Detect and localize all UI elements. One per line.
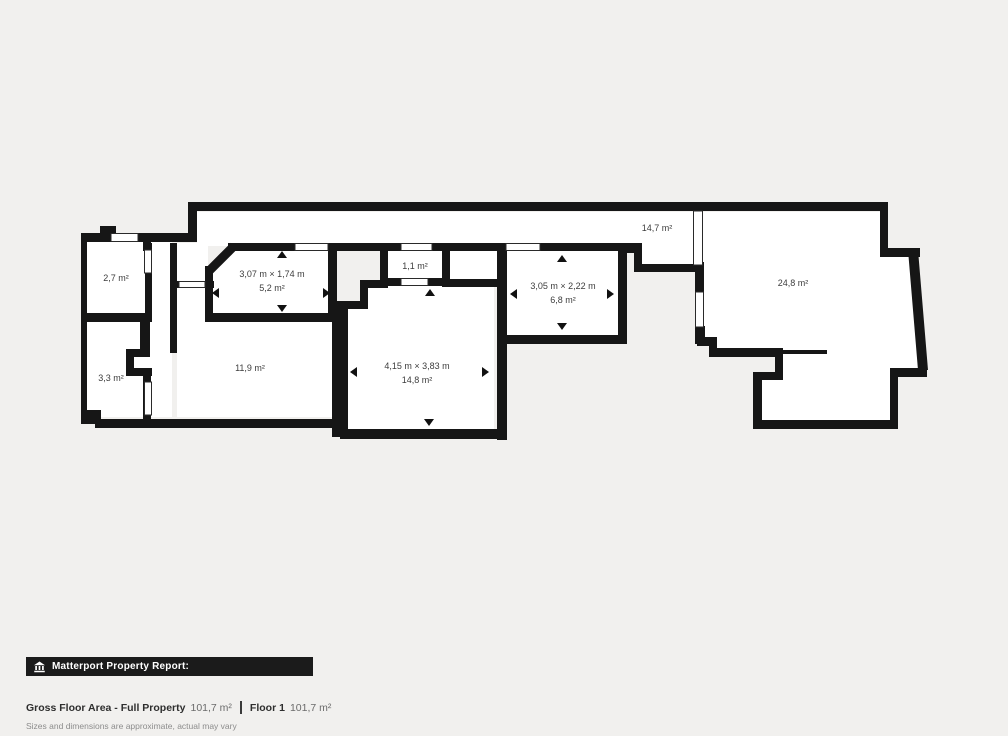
- report-title: Matterport Property Report:: [52, 661, 189, 672]
- floor-1-label: Floor 1: [250, 702, 285, 714]
- summary-divider: [240, 701, 242, 714]
- room-label-14-8: 14,8 m²: [402, 375, 433, 385]
- window-marker: [179, 282, 205, 288]
- gross-floor-area-label: Gross Floor Area - Full Property: [26, 702, 185, 714]
- room-label-2-7: 2,7 m²: [103, 273, 129, 283]
- wall: [332, 301, 348, 437]
- wall: [95, 419, 343, 428]
- building-icon: [33, 661, 46, 673]
- room-dims-14-8: 4,15 m × 3,83 m: [384, 361, 449, 371]
- wall: [634, 264, 700, 272]
- room-label-5-2: 5,2 m²: [259, 283, 285, 293]
- room-label-1-1: 1,1 m²: [402, 261, 428, 271]
- window-marker: [401, 279, 428, 286]
- wall: [497, 335, 627, 344]
- room-label-11-9: 11,9 m²: [235, 363, 265, 373]
- window-marker: [111, 234, 138, 242]
- wall: [170, 243, 177, 353]
- window-marker: [295, 244, 328, 251]
- wall: [228, 243, 642, 251]
- room-dims-5-2: 3,07 m × 1,74 m: [239, 269, 304, 279]
- wall: [880, 207, 888, 254]
- wall: [193, 202, 888, 211]
- wall: [709, 348, 783, 357]
- room-2-7-and-3-3-fill: [86, 240, 172, 417]
- wall: [81, 233, 197, 242]
- page: { "page": { "background": "#f1f0ee" }, "…: [0, 0, 1008, 736]
- report-title-bar: Matterport Property Report:: [26, 657, 313, 676]
- room-label-3-3: 3,3 m²: [98, 373, 124, 383]
- floor-1-value: 101,7 m²: [290, 702, 331, 714]
- room-dims-6-8: 3,05 m × 2,22 m: [530, 281, 595, 291]
- wall: [81, 233, 87, 415]
- wall: [205, 313, 337, 322]
- window-marker: [401, 244, 432, 251]
- area-summary: Gross Floor Area - Full Property 101,7 m…: [26, 701, 331, 714]
- door-opening: [694, 211, 703, 265]
- window-marker: [696, 292, 704, 327]
- wall: [753, 372, 762, 428]
- wall: [753, 420, 898, 429]
- wall: [695, 262, 704, 293]
- window-marker: [145, 382, 152, 415]
- gross-floor-area-value: 101,7 m²: [190, 702, 231, 714]
- disclaimer-text: Sizes and dimensions are approximate, ac…: [26, 721, 237, 731]
- room-label-6-8: 6,8 m²: [550, 295, 576, 305]
- wall: [618, 250, 627, 343]
- wall-stub: [783, 350, 827, 354]
- window-marker: [145, 250, 152, 273]
- room-label-corridor: 14,7 m²: [642, 223, 673, 233]
- wall: [100, 226, 116, 234]
- floor-plan: 2,7 m² 3,3 m² 11,9 m² 3,07 m × 1,74 m 5,…: [0, 0, 1008, 736]
- room-label-24-8: 24,8 m²: [778, 278, 809, 288]
- wall: [890, 377, 898, 429]
- wall: [497, 250, 507, 440]
- window-marker: [506, 244, 540, 251]
- wall: [340, 429, 500, 439]
